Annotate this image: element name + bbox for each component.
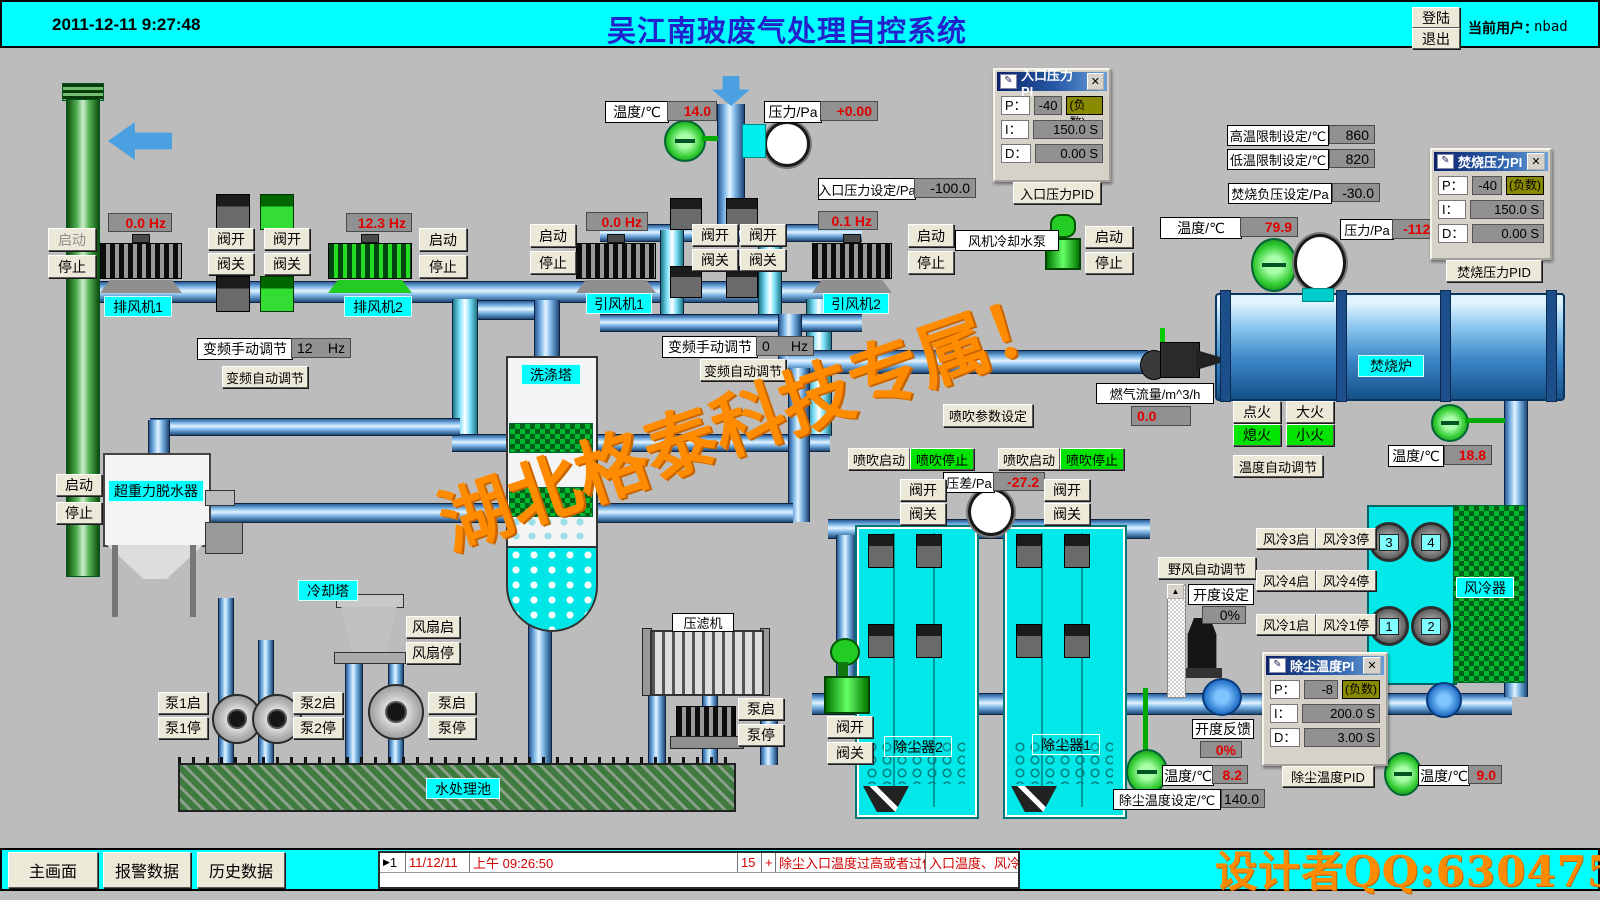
induced-valve1-close-button[interactable]: 阀关 <box>692 249 738 271</box>
big-fire-button[interactable]: 大火 <box>1286 401 1334 423</box>
scroll-up-button[interactable]: ▲ <box>1167 584 1184 599</box>
dust-in-temp-display: 8.2 <box>1212 765 1248 784</box>
i-label: I： <box>1438 200 1466 219</box>
flow-arrow-down-icon <box>712 76 750 106</box>
burn-pid-titlebar[interactable]: ✎ 焚烧压力PI ✕ <box>1434 152 1548 171</box>
induced-fan2-label: 引风机2 <box>823 293 889 314</box>
d-label: D： <box>1270 728 1300 747</box>
alarm-num: 1 <box>390 855 397 870</box>
title-bar: 2011-12-11 9:27:48 吴江南玻废气处理自控系统 登陆 退出 当前… <box>0 0 1600 48</box>
burn-pid-title: 焚烧压力PI <box>1458 152 1522 171</box>
blow2-stop-button[interactable]: 喷吹停止 <box>1060 448 1124 470</box>
press-motor-base <box>670 736 744 749</box>
gas-flow-display: 0.0 <box>1131 406 1191 426</box>
pump1-stop-button[interactable]: 泵1停 <box>158 717 208 739</box>
dust-pid-p-value[interactable]: -8 <box>1304 680 1338 699</box>
blow-valve1-open-button[interactable]: 阀开 <box>900 479 946 501</box>
i-label: I： <box>1270 704 1298 723</box>
cool-fan-start-button[interactable]: 风扇启 <box>406 616 460 638</box>
inlet-pid-title: 入口压力PI <box>1021 65 1083 99</box>
scada-screen: 2011-12-11 9:27:48 吴江南玻废气处理自控系统 登陆 退出 当前… <box>0 0 1600 900</box>
pulse-valve-icon <box>1064 624 1090 658</box>
ignite-button[interactable]: 点火 <box>1233 401 1281 423</box>
burn-pid-d-value[interactable]: 0.00 S <box>1472 224 1544 243</box>
aircool1-stop-button[interactable]: 风冷1停 <box>1316 614 1376 635</box>
exhaust-fan2-motor <box>328 234 412 293</box>
pressure-gauge-icon <box>1294 234 1346 292</box>
p-label: P： <box>1270 680 1300 699</box>
pipe <box>452 299 478 436</box>
p-label: P： <box>1438 176 1468 195</box>
cool-fan-stop-button[interactable]: 风扇停 <box>406 642 460 664</box>
dehydrator-hopper <box>107 545 203 579</box>
incinerator-band <box>1546 290 1557 402</box>
cooling-tower-body <box>340 607 398 653</box>
dehydrator-label: 超重力脱水器 <box>108 480 204 502</box>
pulse-valve-icon <box>868 534 894 568</box>
pump-start-button[interactable]: 泵启 <box>428 692 476 714</box>
opening-feedback-label: 开度反馈 <box>1192 719 1254 739</box>
exhaust-fan2-label: 排风机2 <box>344 296 412 317</box>
sensor-stem <box>702 136 718 141</box>
aircooler-label: 风冷器 <box>1456 577 1514 598</box>
furnace-out-temp-display: 18.8 <box>1444 445 1492 465</box>
dust-valve-open-button[interactable]: 阀开 <box>827 716 873 738</box>
dust-temp-set-display[interactable]: 140.0 <box>1221 789 1265 808</box>
burn-pid-window: ✎ 焚烧压力PI ✕ P： -40 (负数) I： 150.0 S D： 0.0… <box>1430 148 1552 260</box>
alarm-plus: + <box>762 853 776 872</box>
high-temp-limit-display[interactable]: 860 <box>1329 125 1375 144</box>
main-screen-button[interactable]: 主画面 <box>8 852 98 888</box>
induced-valve1-open-button[interactable]: 阀开 <box>692 224 738 246</box>
dust-pid-title: 除尘温度PI <box>1290 656 1354 675</box>
pid-doc-icon: ✎ <box>1437 154 1454 169</box>
press-body <box>650 630 764 696</box>
gauge-base <box>1302 288 1334 302</box>
burn-pid-p-value[interactable]: -40 <box>1472 176 1502 195</box>
green-valve-body-icon[interactable] <box>824 676 870 714</box>
pool-label: 水处理池 <box>426 778 500 799</box>
furnace-temp-label: 温度/℃ <box>1160 217 1242 239</box>
d-label: D： <box>1438 224 1468 243</box>
damper-actuator-base <box>1182 668 1222 678</box>
incinerator-label: 焚烧炉 <box>1358 355 1424 377</box>
press-label: 压滤机 <box>672 613 734 632</box>
induced-fan1-label: 引风机1 <box>586 293 652 314</box>
aircool4-start-button[interactable]: 风冷4启 <box>1256 570 1316 591</box>
induced-fan2-motor <box>812 234 892 293</box>
inlet-pressure-label: 压力/Pa <box>764 101 822 123</box>
blow2-start-button[interactable]: 喷吹启动 <box>998 448 1060 470</box>
pump-stop-button[interactable]: 泵停 <box>428 717 476 739</box>
exhaust-valve1-open-button[interactable]: 阀开 <box>208 228 254 250</box>
temp-sensor-icon <box>1384 752 1422 796</box>
exhaust-fan1-start-button[interactable]: 启动 <box>48 228 96 251</box>
scrubber-label: 洗涤塔 <box>521 364 581 385</box>
scrubber-packing <box>509 423 593 453</box>
exhaust-vfd-value-display[interactable]: 12Hz <box>291 338 351 358</box>
dust-temp-set-label: 除尘温度设定/℃ <box>1113 789 1221 810</box>
pressure-gauge-icon <box>764 121 810 167</box>
dehydrator-fitting <box>205 490 235 506</box>
login-button[interactable]: 登陆 <box>1412 7 1460 28</box>
pipe <box>788 350 1148 374</box>
inlet-pid-p-value[interactable]: -40 <box>1034 96 1063 115</box>
exhaust-vfd-auto-button[interactable]: 变频自动调节 <box>222 366 308 388</box>
close-icon[interactable]: ✕ <box>1527 153 1545 170</box>
dehydrator-leg <box>112 545 118 617</box>
opening-scrollbar[interactable] <box>1167 584 1186 698</box>
d-label: D： <box>1001 144 1031 163</box>
induced-vfd-manual-label: 变频手动调节 <box>662 336 758 358</box>
dust-pid-titlebar[interactable]: ✎ 除尘温度PI ✕ <box>1266 656 1384 675</box>
induced-valve2-open-button[interactable]: 阀开 <box>740 224 786 246</box>
cooling-tower-base <box>334 652 406 664</box>
inlet-pressure-set-label: 入口压力设定/Pa <box>818 178 916 200</box>
burn-negpressure-set-display[interactable]: -30.0 <box>1332 183 1380 202</box>
induced-fan2-freq-display: 0.1 Hz <box>818 211 878 230</box>
green-valve-stem <box>838 662 848 676</box>
page-title: 吴江南玻废气处理自控系统 <box>522 8 1052 50</box>
flow-arrow-left-icon <box>108 122 172 160</box>
pump1-start-button[interactable]: 泵1启 <box>158 692 208 714</box>
burn-pid-i-value[interactable]: 150.0 S <box>1470 200 1544 219</box>
dp-label: 压差/Pa <box>943 472 995 493</box>
pipe <box>150 418 460 436</box>
alarm-row[interactable]: ▶1 11/12/11 上午 09:26:50 15 + 除尘入口温度过高或者过… <box>380 853 1018 873</box>
alarm-code: 15 <box>738 853 762 872</box>
exhaust-fan2-freq-display: 12.3 Hz <box>346 213 412 232</box>
burn-pid-button[interactable]: 焚烧压力PID <box>1446 260 1542 282</box>
temp-auto-adjust-button[interactable]: 温度自动调节 <box>1233 455 1323 477</box>
blow-valve2-open-button[interactable]: 阀开 <box>1044 479 1090 501</box>
current-user-value: nbad <box>1534 19 1568 35</box>
burner-icon <box>1160 342 1200 378</box>
pipe <box>534 300 560 358</box>
alarm-row-empty <box>380 873 1018 887</box>
aircool3-stop-button[interactable]: 风冷3停 <box>1316 528 1376 549</box>
pump2-stop-button[interactable]: 泵2停 <box>293 717 343 739</box>
induced-fan1-start-button[interactable]: 启动 <box>530 224 576 247</box>
inlet-pressure-display: +0.00 <box>820 101 878 121</box>
dehydrator-start-button[interactable]: 启动 <box>56 474 102 496</box>
inlet-pressure-set-display[interactable]: -100.0 <box>914 178 976 198</box>
pump2-start-button[interactable]: 泵2启 <box>293 692 343 714</box>
cooling-pump-start-button[interactable]: 启动 <box>1085 226 1133 248</box>
press-motor <box>676 706 736 738</box>
aircool4-stop-button[interactable]: 风冷4停 <box>1316 570 1376 591</box>
datetime: 2011-12-11 9:27:48 <box>52 15 200 35</box>
pulse-valve-icon <box>868 624 894 658</box>
cooling-pump-label: 风机冷却水泵 <box>955 230 1059 251</box>
exhaust-fan1-label: 排风机1 <box>104 296 172 317</box>
induced-fan2-stop-button[interactable]: 停止 <box>908 251 954 274</box>
close-icon[interactable]: ✕ <box>1363 657 1381 674</box>
dehydrator-stop-button[interactable]: 停止 <box>56 502 102 524</box>
exhaust-fan1-stop-button[interactable]: 停止 <box>48 255 96 278</box>
induced-vfd-auto-button[interactable]: 变频自动调节 <box>700 359 786 381</box>
blow-valve2-close-button[interactable]: 阀关 <box>1044 503 1090 525</box>
exhaust-fan1-motor <box>100 234 182 293</box>
alarm-table[interactable]: ▶1 11/12/11 上午 09:26:50 15 + 除尘入口温度过高或者过… <box>378 851 1020 889</box>
history-data-button[interactable]: 历史数据 <box>197 852 285 888</box>
scrubber-packing <box>509 487 593 517</box>
high-temp-limit-label: 高温限制设定/℃ <box>1227 125 1329 146</box>
burn-negpressure-set-label: 焚烧负压设定/Pa <box>1228 183 1332 204</box>
temp-sensor-icon <box>1251 238 1297 292</box>
blow-params-button[interactable]: 喷吹参数设定 <box>943 404 1033 427</box>
furnace-pressure-label: 压力/Pa <box>1340 219 1394 240</box>
inlet-pid-titlebar[interactable]: ✎ 入口压力PI ✕ <box>997 72 1107 91</box>
aircool1-start-button[interactable]: 风冷1启 <box>1256 614 1316 635</box>
exhaust-valve2-close-button[interactable]: 阀关 <box>264 253 310 275</box>
scrubber-sump <box>506 546 598 632</box>
pulse-valve-icon <box>1064 534 1090 568</box>
inlet-pid-i-value[interactable]: 150.0 S <box>1033 120 1103 139</box>
dust-pid-i-value[interactable]: 200.0 S <box>1302 704 1380 723</box>
pid-doc-icon: ✎ <box>1269 658 1286 673</box>
pulse-valve-icon <box>916 534 942 568</box>
alarm-detail: 入口温度、风冷、野风 <box>926 853 1018 872</box>
incinerator-band <box>1220 290 1231 402</box>
sensor-stem <box>1143 688 1148 750</box>
aircool-fan-2: 2 <box>1411 606 1451 646</box>
induced-valve2-close-button[interactable]: 阀关 <box>740 249 786 271</box>
p-label: P： <box>1001 96 1030 115</box>
induced-fan1-stop-button[interactable]: 停止 <box>530 251 576 274</box>
i-label: I： <box>1001 120 1029 139</box>
incinerator <box>1215 293 1565 401</box>
opening-feedback-display: 0% <box>1200 741 1242 758</box>
inlet-pid-button[interactable]: 入口压力PID <box>1013 182 1101 204</box>
pulse-valve-icon <box>1016 534 1042 568</box>
dust-out-temp-display: 9.0 <box>1468 765 1502 784</box>
logout-button[interactable]: 退出 <box>1412 28 1460 49</box>
exhaust-fan2-start-button[interactable]: 启动 <box>419 228 467 251</box>
press-pump-stop-button[interactable]: 泵停 <box>738 724 784 746</box>
exhaust-valve2-open-button[interactable]: 阀开 <box>264 228 310 250</box>
induced-fan2-start-button[interactable]: 启动 <box>908 224 954 247</box>
dp-display: -27.2 <box>993 472 1045 491</box>
pulse-valve-icon <box>916 624 942 658</box>
small-fire-button[interactable]: 小火 <box>1286 424 1334 446</box>
gas-flow-label: 燃气流量/m^3/h <box>1096 383 1214 404</box>
dp-gauge-icon <box>968 488 1014 536</box>
exhaust-fan2-stop-button[interactable]: 停止 <box>419 255 467 278</box>
pipe <box>528 622 552 765</box>
dust-valve-close-button[interactable]: 阀关 <box>827 742 873 764</box>
incinerator-band <box>1440 290 1451 402</box>
negative-badge: (负数) <box>1342 680 1380 699</box>
negative-badge: (负数) <box>1506 176 1544 195</box>
pipe <box>600 314 862 332</box>
blow1-stop-button[interactable]: 喷吹停止 <box>910 448 974 470</box>
valve-icon[interactable] <box>216 194 250 230</box>
exhaust-vfd-manual-label: 变频手动调节 <box>197 338 293 360</box>
dust-out-temp-label: 温度/℃ <box>1418 765 1470 786</box>
blue-valve-icon[interactable] <box>1426 682 1462 718</box>
row-marker-icon: ▶ <box>383 857 390 868</box>
temp-sensor-icon <box>664 120 706 162</box>
dehydrator-fitting <box>205 522 243 554</box>
dehydrator-leg <box>190 545 196 617</box>
dust-collector2-label: 除尘器2 <box>884 736 952 757</box>
off-fire-button[interactable]: 熄火 <box>1233 424 1281 446</box>
pump-icon[interactable] <box>368 684 424 740</box>
dust-collector1-label: 除尘器1 <box>1032 734 1100 755</box>
pipe <box>345 658 363 765</box>
aircool-fan-4: 4 <box>1411 522 1451 562</box>
sensor-stem <box>1465 418 1505 423</box>
blue-valve-icon[interactable] <box>1202 678 1242 716</box>
pipe <box>205 503 793 523</box>
negative-badge: (负数) <box>1066 96 1103 115</box>
furnace-out-temp-label: 温度/℃ <box>1388 445 1444 467</box>
inlet-pid-window: ✎ 入口压力PI ✕ P： -40 (负数) I： 150.0 S D： 0.0… <box>993 68 1111 182</box>
inlet-pid-d-value[interactable]: 0.00 S <box>1035 144 1103 163</box>
alarm-time: 上午 09:26:50 <box>470 853 738 872</box>
blow1-start-button[interactable]: 喷吹启动 <box>848 448 910 470</box>
close-icon[interactable]: ✕ <box>1087 73 1104 90</box>
press-pump-start-button[interactable]: 泵启 <box>738 698 784 720</box>
damper-actuator-icon <box>1186 618 1218 672</box>
valve-icon[interactable] <box>260 276 294 312</box>
current-user-label: 当前用户： <box>1468 18 1538 38</box>
low-temp-limit-label: 低温限制设定/℃ <box>1227 149 1329 170</box>
scrubber-spray <box>509 515 591 548</box>
induced-fan1-motor <box>576 234 656 293</box>
pulse-valve-icon <box>1016 624 1042 658</box>
dust-in-temp-label: 温度/℃ <box>1162 765 1214 786</box>
exhaust-valve1-close-button[interactable]: 阀关 <box>208 253 254 275</box>
dust-pid-window: ✎ 除尘温度PI ✕ P： -8 (负数) I： 200.0 S D： 3.00… <box>1262 652 1388 766</box>
cooling-tower-label: 冷却塔 <box>298 580 358 601</box>
low-temp-limit-display[interactable]: 820 <box>1329 149 1375 168</box>
opening-set-display[interactable]: 0% <box>1202 606 1246 624</box>
pipe <box>648 688 666 765</box>
induced-vfd-value-display[interactable]: 0Hz <box>756 336 814 356</box>
gauge-block <box>742 124 766 158</box>
furnace-temp-display: 79.9 <box>1240 217 1298 237</box>
aircool3-start-button[interactable]: 风冷3启 <box>1256 528 1316 549</box>
opening-set-label: 开度设定 <box>1188 584 1254 605</box>
temp-sensor-icon <box>1431 404 1469 442</box>
exhaust-fan1-freq-display: 0.0 Hz <box>108 213 172 232</box>
pid-doc-icon: ✎ <box>1000 74 1017 89</box>
alarm-data-button[interactable]: 报警数据 <box>103 852 191 888</box>
pipe <box>788 368 810 522</box>
alarm-message: 除尘入口温度过高或者过低 <box>776 853 926 872</box>
dust-pid-button[interactable]: 除尘温度PID <box>1282 766 1374 787</box>
inlet-temp-display: 14.0 <box>667 101 717 121</box>
dust-pid-d-value[interactable]: 3.00 S <box>1304 728 1380 747</box>
incinerator-band <box>1336 290 1347 402</box>
blow-valve1-close-button[interactable]: 阀关 <box>900 503 946 525</box>
cooling-pump-stop-button[interactable]: 停止 <box>1085 252 1133 274</box>
valve-icon[interactable] <box>260 194 294 230</box>
induced-fan1-freq-display: 0.0 Hz <box>586 212 648 231</box>
wild-air-auto-button[interactable]: 野风自动调节 <box>1158 557 1256 579</box>
alarm-date: 11/12/11 <box>406 853 470 872</box>
inlet-temp-label: 温度/℃ <box>605 101 669 123</box>
valve-icon[interactable] <box>216 276 250 312</box>
